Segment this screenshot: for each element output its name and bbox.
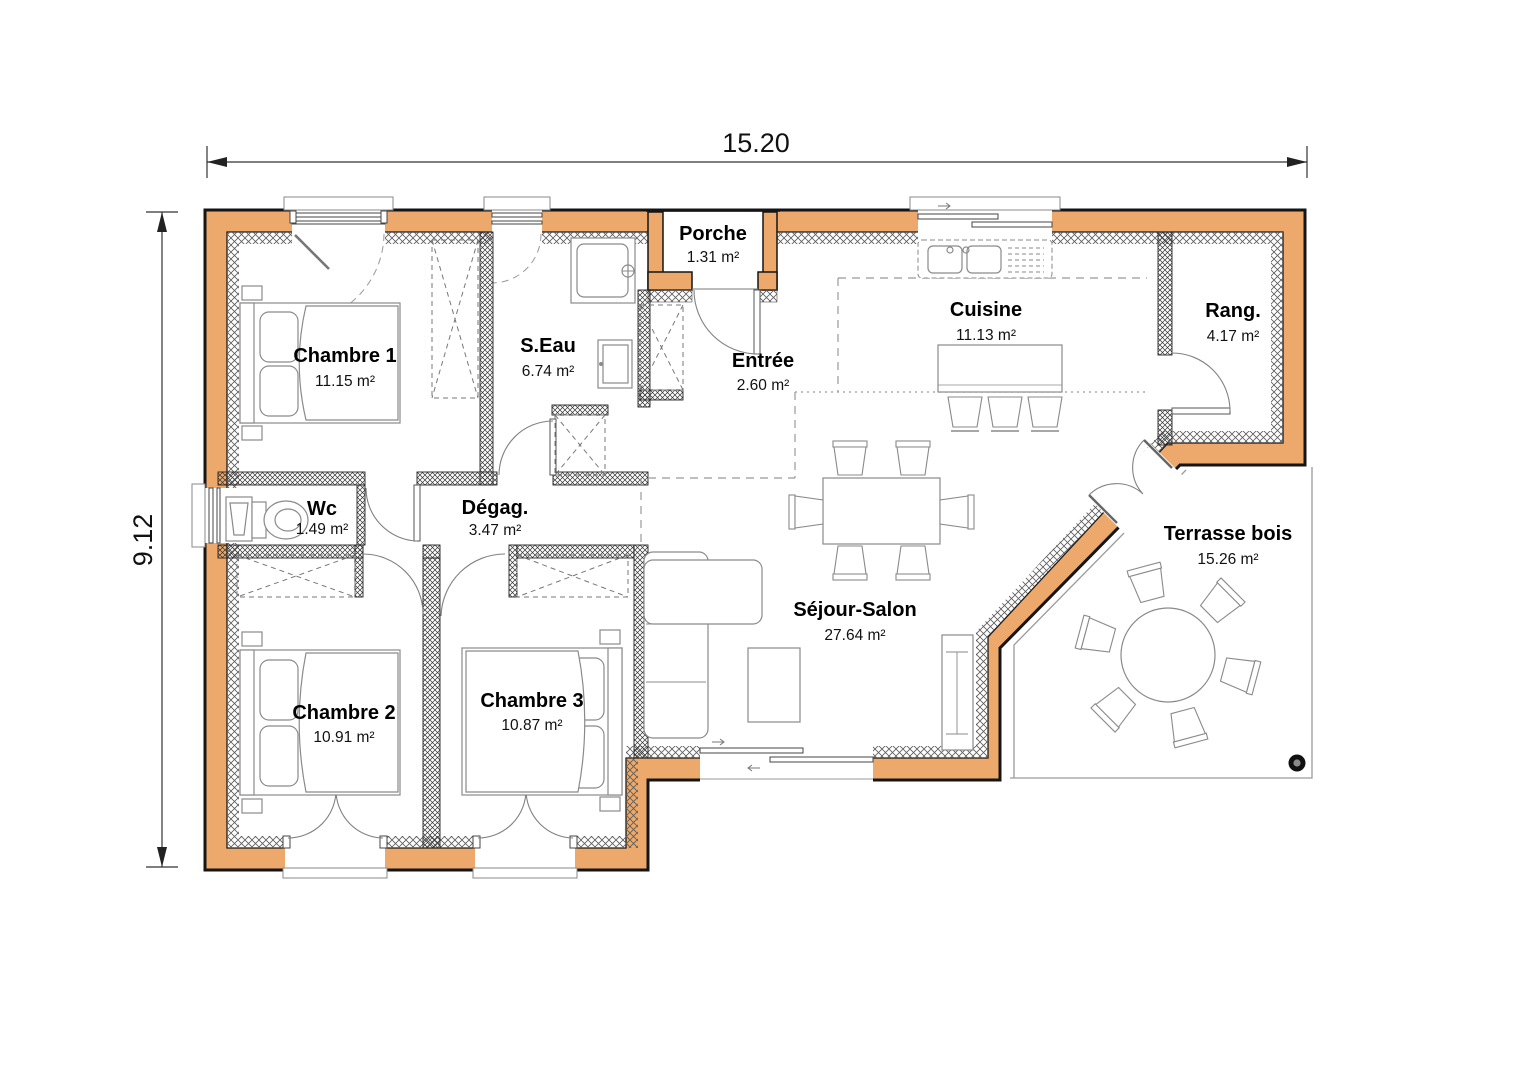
terrace-dining-set — [1075, 562, 1261, 748]
dimension-left: 9.12 — [128, 212, 178, 867]
room-label-degag: Dégag. 3.47 m² — [462, 497, 529, 539]
room-name: Cuisine — [950, 299, 1022, 321]
dimension-height-label: 9.12 — [128, 514, 158, 567]
coffee-table — [748, 648, 800, 722]
dim-arrow-up — [157, 212, 167, 232]
dim-arrow-right — [1287, 157, 1307, 167]
room-area: 11.13 m² — [956, 327, 1016, 344]
bathroom-sink-icon — [598, 340, 632, 388]
kitchen-island — [938, 345, 1062, 431]
dim-arrow-down — [157, 847, 167, 867]
room-area: 15.26 m² — [1197, 551, 1258, 568]
bay-window-sejour — [700, 739, 873, 782]
wall-degag-chambre3 — [517, 545, 634, 558]
room-name: Rang. — [1205, 300, 1261, 322]
room-area: 10.91 m² — [313, 729, 374, 746]
room-name: Entrée — [732, 350, 794, 372]
dimension-top: 15.20 — [207, 128, 1307, 178]
wall-rang-left — [1158, 232, 1172, 355]
room-area: 2.60 m² — [737, 377, 790, 394]
wall-chambre1-wc — [218, 472, 365, 485]
room-area: 1.31 m² — [687, 249, 740, 266]
room-name: Terrasse bois — [1164, 523, 1293, 545]
dimension-width-label: 15.20 — [722, 128, 790, 158]
room-name: Chambre 1 — [293, 345, 396, 367]
room-area: 1.49 m² — [296, 521, 349, 538]
room-name: S.Eau — [520, 335, 576, 357]
room-name: Chambre 2 — [292, 702, 395, 724]
room-name: Séjour-Salon — [793, 599, 916, 621]
shower-icon — [571, 238, 635, 303]
wall-wc-right — [357, 485, 365, 545]
room-area: 3.47 m² — [469, 522, 522, 539]
console-sejour — [942, 635, 973, 750]
room-name: Porche — [679, 223, 747, 245]
room-label-porche: Porche 1.31 m² — [679, 223, 747, 266]
room-name: Wc — [307, 498, 337, 520]
room-area: 11.15 m² — [315, 373, 375, 390]
wall-chambre1-seau — [480, 232, 493, 485]
room-area: 27.64 m² — [824, 627, 885, 644]
round-table — [1121, 608, 1215, 702]
floor-plan-page: 15.20 9.12 — [0, 0, 1527, 1080]
room-area: 6.74 m² — [522, 363, 575, 380]
kitchen-sink-icon — [918, 240, 1052, 278]
room-area: 10.87 m² — [501, 717, 562, 734]
room-label-terrasse: Terrasse bois 15.26 m² — [1164, 523, 1293, 568]
wall-seau-degag — [553, 472, 648, 485]
room-name: Dégag. — [462, 497, 529, 519]
floor-plan-canvas: 15.20 9.12 — [0, 0, 1527, 1080]
room-area: 4.17 m² — [1207, 328, 1260, 345]
room-name: Chambre 3 — [480, 690, 583, 712]
dim-arrow-left — [207, 157, 227, 167]
wall-chambre2-chambre3 — [423, 558, 440, 848]
